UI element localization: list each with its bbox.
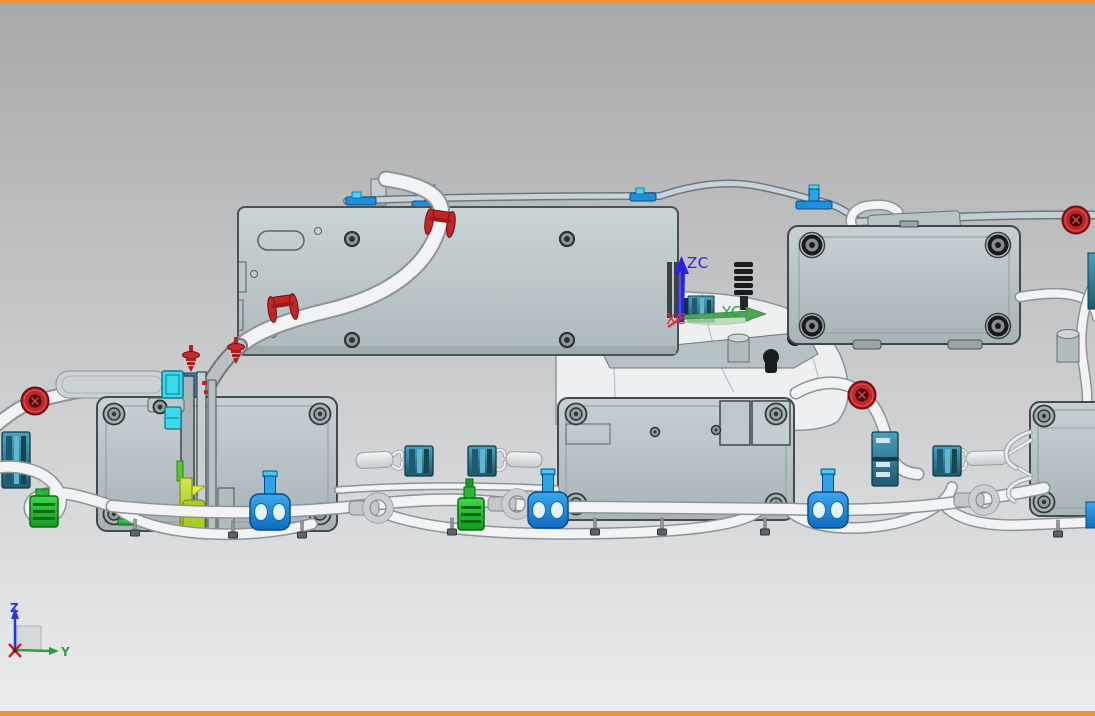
wcs-z-label: ZC [687,254,709,272]
canister-cylinder[interactable] [728,334,749,362]
corner-bolt[interactable] [1034,406,1055,427]
wcs-y-label: YC [721,303,742,321]
cad-scene[interactable]: ZC YC XC Z Y [0,0,1095,716]
mount-bolt[interactable] [800,233,825,258]
connector-teal-far-left[interactable] [2,432,30,488]
plate-bolt[interactable] [560,232,574,246]
splice-cylinder-2[interactable] [506,451,543,467]
connector-cyan-top[interactable] [162,371,183,398]
corner-bolt[interactable] [104,404,125,425]
red-grommet-mid[interactable] [849,382,876,409]
tube-clamp-blue-edge[interactable] [1086,502,1095,528]
mounting-plate[interactable] [238,207,678,355]
view-cube [17,626,41,650]
splice-cylinder-1[interactable] [356,451,394,469]
corner-bolt[interactable] [310,404,331,425]
right-cylinder[interactable] [1057,330,1079,363]
plate-bolt[interactable] [345,232,359,246]
connector-cyan-lower[interactable] [165,407,181,429]
mount-bolt[interactable] [986,233,1011,258]
wcs-x-label: XC [666,310,687,328]
view-y-axis [15,650,50,651]
frame-top [0,0,1095,4]
red-grommet-right[interactable] [1063,207,1090,234]
mount-bolt[interactable] [986,314,1011,339]
module-box-topright[interactable] [788,221,1020,349]
module-box-right[interactable] [1030,402,1095,516]
corner-bolt[interactable] [766,404,787,425]
view-z-label: Z [10,601,19,615]
plate-bolt[interactable] [345,333,359,347]
shelf-bracket[interactable] [56,371,168,398]
plate-bolt[interactable] [560,333,574,347]
view-y-label: Y [60,645,70,659]
connector-teal-stack[interactable] [872,432,898,486]
red-grommet-left[interactable] [22,388,49,415]
connector-teal-3[interactable] [933,446,961,476]
splice-cylinder-3[interactable] [966,450,1008,465]
corner-bolt[interactable] [566,404,587,425]
connector-teal-1[interactable] [405,446,433,476]
mount-bolt[interactable] [800,314,825,339]
panel-pin[interactable] [763,349,779,373]
connector-teal-edge[interactable] [1088,253,1095,309]
cad-viewport[interactable]: ZC YC XC Z Y [0,0,1095,716]
viewport-background [0,0,1095,716]
frame-bottom [0,711,1095,716]
connector-teal-2[interactable] [468,446,496,476]
